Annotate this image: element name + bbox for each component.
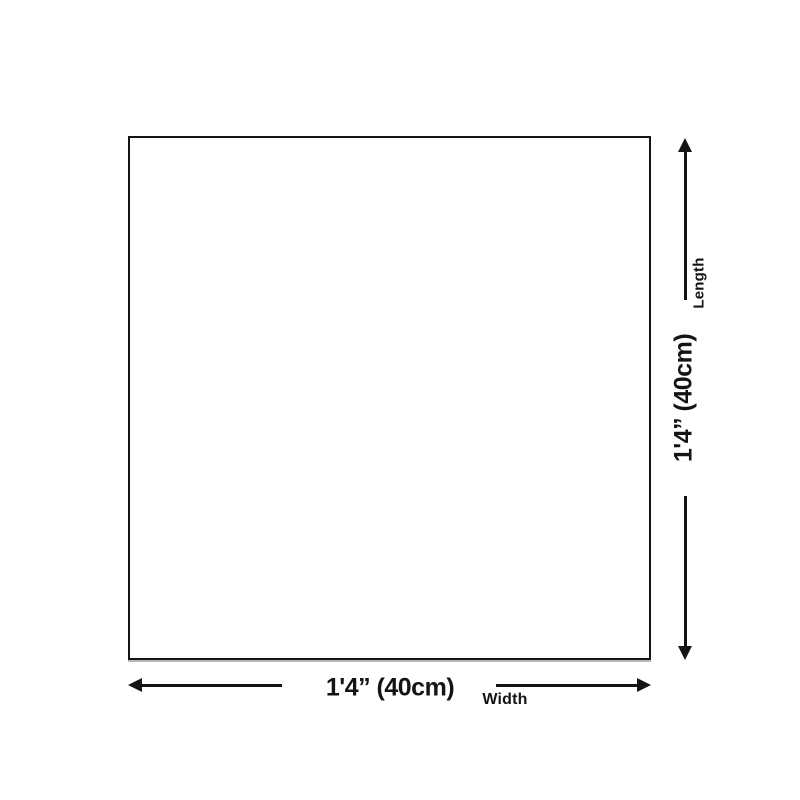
width-dimension-value: 1'4” (40cm) <box>326 674 454 703</box>
length-dimension-line-lower <box>684 496 687 648</box>
length-dimension-line-upper <box>684 150 687 300</box>
width-axis-label: Width <box>482 691 527 709</box>
length-arrow-down-icon <box>678 646 692 660</box>
product-outline-square <box>128 136 651 660</box>
length-axis-label: Length <box>691 257 708 308</box>
width-arrow-right-icon <box>637 678 651 692</box>
length-dimension-value: 1'4” (40cm) <box>670 334 699 462</box>
width-dimension-line-left <box>142 684 282 687</box>
width-dimension-line-right <box>496 684 637 687</box>
dimension-diagram: Length 1'4” (40cm) 1'4” (40cm) Width <box>0 0 800 800</box>
width-arrow-left-icon <box>128 678 142 692</box>
